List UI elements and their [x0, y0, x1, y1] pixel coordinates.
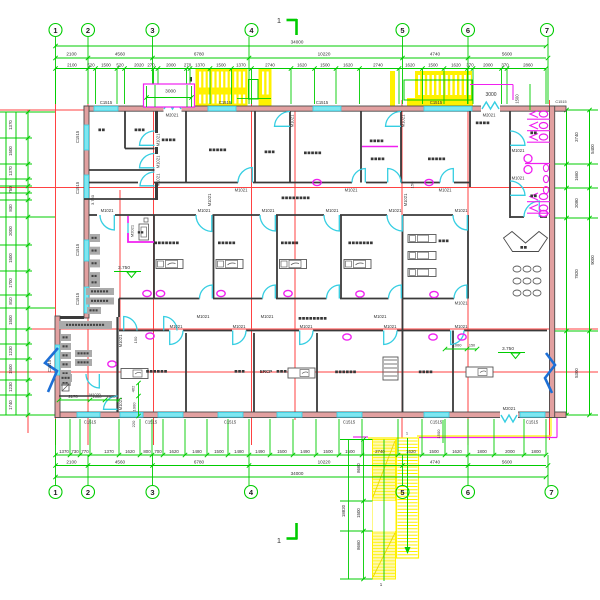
svg-text:1500: 1500	[277, 449, 287, 454]
svg-text:C1515: C1515	[555, 100, 566, 104]
svg-text:M1021: M1021	[156, 173, 161, 186]
svg-text:6: 6	[466, 488, 470, 497]
svg-text:1: 1	[53, 26, 57, 35]
svg-text:1370: 1370	[8, 166, 13, 176]
svg-text:1800: 1800	[531, 449, 541, 454]
svg-text:M1021: M1021	[261, 314, 274, 319]
svg-text:M1021: M1021	[170, 324, 183, 329]
svg-text:1620: 1620	[169, 449, 179, 454]
svg-text:M1021: M1021	[345, 188, 358, 193]
svg-text:1620: 1620	[452, 449, 462, 454]
svg-text:1740: 1740	[8, 400, 13, 410]
svg-text:C1515: C1515	[430, 420, 443, 425]
svg-text:2740: 2740	[375, 449, 385, 454]
svg-text:1070: 1070	[107, 394, 117, 399]
svg-text:810: 810	[8, 297, 13, 305]
svg-text:8660: 8660	[356, 463, 361, 473]
svg-text:1370: 1370	[236, 62, 246, 67]
svg-text:ERCP: ERCP	[260, 369, 272, 374]
svg-text:150: 150	[469, 344, 475, 348]
svg-text:700: 700	[154, 449, 162, 454]
svg-text:C1515: C1515	[430, 100, 443, 105]
svg-text:C1515: C1515	[219, 100, 232, 105]
svg-text:M1021: M1021	[300, 324, 313, 329]
svg-text:1: 1	[53, 488, 57, 497]
svg-text:M1021: M1021	[101, 208, 114, 213]
svg-text:10220: 10220	[318, 459, 331, 464]
svg-text:34000: 34000	[291, 40, 304, 45]
svg-text:M1021: M1021	[455, 208, 468, 213]
svg-text:6780: 6780	[194, 52, 205, 57]
svg-text:4740: 4740	[430, 459, 441, 464]
svg-text:M1021: M1021	[403, 193, 408, 206]
svg-text:1000: 1000	[93, 394, 103, 399]
svg-text:1230: 1230	[8, 382, 13, 392]
svg-text:M2021: M2021	[483, 113, 496, 118]
svg-text:M1021: M1021	[512, 148, 525, 153]
svg-text:M1021: M1021	[401, 114, 406, 127]
svg-text:3000: 3000	[165, 89, 176, 95]
svg-text:1500: 1500	[323, 449, 333, 454]
svg-text:2100: 2100	[67, 62, 77, 67]
svg-text:730: 730	[71, 449, 79, 454]
svg-text:C1515: C1515	[316, 100, 329, 105]
svg-text:M1021: M1021	[374, 314, 387, 319]
svg-text:1500: 1500	[216, 62, 226, 67]
svg-text:5600: 5600	[502, 52, 513, 57]
svg-text:M1021: M1021	[235, 188, 248, 193]
svg-text:2740: 2740	[373, 62, 383, 67]
svg-text:C1515: C1515	[145, 420, 158, 425]
svg-text:2020: 2020	[134, 62, 144, 67]
svg-text:2000: 2000	[8, 226, 13, 236]
svg-text:3000: 3000	[485, 92, 496, 98]
svg-text:520: 520	[87, 62, 95, 67]
svg-text:1500: 1500	[101, 62, 111, 67]
svg-text:1490: 1490	[255, 449, 265, 454]
svg-text:1500: 1500	[8, 253, 13, 263]
svg-text:M2021: M2021	[166, 113, 179, 118]
svg-text:2100: 2100	[66, 459, 77, 464]
svg-text:150: 150	[133, 336, 138, 343]
svg-text:150: 150	[410, 181, 415, 188]
svg-text:34000: 34000	[291, 471, 304, 476]
svg-text:770: 770	[81, 449, 89, 454]
svg-text:1: 1	[277, 536, 281, 545]
svg-text:5300: 5300	[574, 368, 579, 378]
svg-text:270: 270	[147, 62, 155, 67]
svg-text:2080: 2080	[574, 198, 579, 208]
svg-text:C1515: C1515	[75, 130, 80, 143]
svg-text:3740: 3740	[574, 132, 579, 142]
svg-text:750: 750	[8, 186, 13, 194]
svg-text:1500: 1500	[428, 62, 438, 67]
svg-text:2100: 2100	[66, 52, 77, 57]
svg-text:M1021: M1021	[439, 188, 452, 193]
svg-text:1620: 1620	[406, 449, 416, 454]
svg-text:2000: 2000	[505, 449, 515, 454]
svg-text:270: 270	[184, 62, 192, 67]
svg-text:C1515: C1515	[84, 420, 97, 425]
svg-text:M1021: M1021	[290, 114, 295, 127]
svg-text:1000: 1000	[132, 402, 137, 412]
svg-text:2000: 2000	[166, 62, 176, 67]
svg-text:1500: 1500	[8, 146, 13, 156]
svg-text:7: 7	[545, 26, 549, 35]
svg-text:830: 830	[8, 204, 13, 212]
svg-text:18820: 18820	[341, 504, 346, 517]
svg-text:1: 1	[277, 16, 281, 25]
svg-text:1500: 1500	[8, 315, 13, 325]
svg-text:M1021: M1021	[389, 208, 402, 213]
svg-text:1230: 1230	[8, 346, 13, 356]
svg-text:C1515: C1515	[100, 100, 113, 105]
svg-text:220: 220	[131, 420, 136, 427]
svg-text:3: 3	[150, 26, 154, 35]
svg-text:M1021: M1021	[156, 155, 161, 168]
svg-text:C1515: C1515	[224, 420, 237, 425]
svg-text:M1021: M1021	[233, 324, 246, 329]
svg-text:M2021: M2021	[130, 224, 135, 237]
svg-text:M1021: M1021	[455, 301, 468, 306]
svg-text:M1021: M1021	[326, 208, 339, 213]
svg-text:1500: 1500	[356, 508, 361, 518]
svg-text:1800: 1800	[477, 449, 487, 454]
svg-text:M1021: M1021	[198, 208, 211, 213]
svg-text:7: 7	[549, 488, 553, 497]
svg-text:1370: 1370	[195, 62, 205, 67]
svg-text:8660: 8660	[356, 540, 361, 550]
svg-text:1500: 1500	[345, 449, 355, 454]
svg-text:1620: 1620	[405, 62, 415, 67]
svg-text:462: 462	[131, 385, 136, 392]
svg-text:520: 520	[116, 62, 124, 67]
svg-text:6: 6	[466, 26, 470, 35]
svg-text:2860: 2860	[523, 62, 533, 67]
svg-text:9000: 9000	[590, 255, 595, 265]
svg-text:M1021: M1021	[207, 193, 212, 206]
svg-text:1370: 1370	[59, 449, 69, 454]
svg-text:7820: 7820	[574, 269, 579, 279]
svg-text:800: 800	[143, 449, 151, 454]
svg-text:1000: 1000	[453, 343, 463, 348]
svg-text:M1021: M1021	[384, 324, 397, 329]
svg-text:1700: 1700	[8, 278, 13, 288]
svg-text:1620: 1620	[297, 62, 307, 67]
svg-text:C1515: C1515	[75, 292, 80, 305]
svg-text:3.750: 3.750	[502, 346, 514, 352]
svg-text:1620: 1620	[343, 62, 353, 67]
svg-text:1500: 1500	[214, 449, 224, 454]
svg-text:3.750: 3.750	[90, 194, 95, 205]
svg-text:2: 2	[86, 488, 90, 497]
svg-text:1500: 1500	[429, 449, 439, 454]
svg-text:4560: 4560	[115, 52, 126, 57]
svg-text:4560: 4560	[115, 459, 126, 464]
svg-text:5: 5	[400, 488, 404, 497]
svg-text:C1515: C1515	[75, 181, 80, 194]
svg-text:1500: 1500	[8, 364, 13, 374]
svg-text:M1021: M1021	[262, 208, 275, 213]
svg-text:M1021: M1021	[156, 133, 161, 146]
svg-text:M1021: M1021	[512, 176, 525, 181]
svg-text:C1515: C1515	[343, 420, 356, 425]
svg-text:C1515: C1515	[75, 243, 80, 256]
svg-text:1490: 1490	[300, 449, 310, 454]
svg-text:2170: 2170	[68, 394, 78, 399]
svg-text:1660: 1660	[574, 171, 579, 181]
svg-text:3: 3	[150, 488, 154, 497]
svg-text:1500: 1500	[515, 94, 520, 104]
svg-text:5400: 5400	[590, 144, 595, 154]
svg-text:C1515: C1515	[47, 359, 52, 372]
svg-text:370: 370	[501, 62, 509, 67]
svg-text:2000: 2000	[483, 62, 493, 67]
svg-text:1480: 1480	[234, 449, 244, 454]
svg-text:C1515: C1515	[526, 420, 539, 425]
svg-text:1480: 1480	[192, 449, 202, 454]
svg-text:1370: 1370	[104, 449, 114, 454]
svg-text:M1021: M1021	[197, 314, 210, 319]
svg-text:6780: 6780	[194, 459, 205, 464]
svg-text:M2021: M2021	[503, 406, 516, 411]
svg-text:4740: 4740	[430, 52, 441, 57]
svg-text:5600: 5600	[502, 459, 513, 464]
svg-text:5: 5	[400, 26, 404, 35]
svg-text:3.750: 3.750	[118, 265, 130, 271]
svg-text:1620: 1620	[451, 62, 461, 67]
svg-text:1620: 1620	[125, 449, 135, 454]
svg-text:370: 370	[466, 62, 474, 67]
svg-text:1500: 1500	[436, 429, 441, 439]
svg-text:1370: 1370	[8, 120, 13, 130]
svg-text:M1021: M1021	[118, 334, 123, 347]
svg-text:M1021: M1021	[455, 324, 468, 329]
svg-text:1500: 1500	[320, 62, 330, 67]
svg-text:10220: 10220	[318, 52, 331, 57]
svg-text:2740: 2740	[265, 62, 275, 67]
svg-text:2: 2	[86, 26, 90, 35]
